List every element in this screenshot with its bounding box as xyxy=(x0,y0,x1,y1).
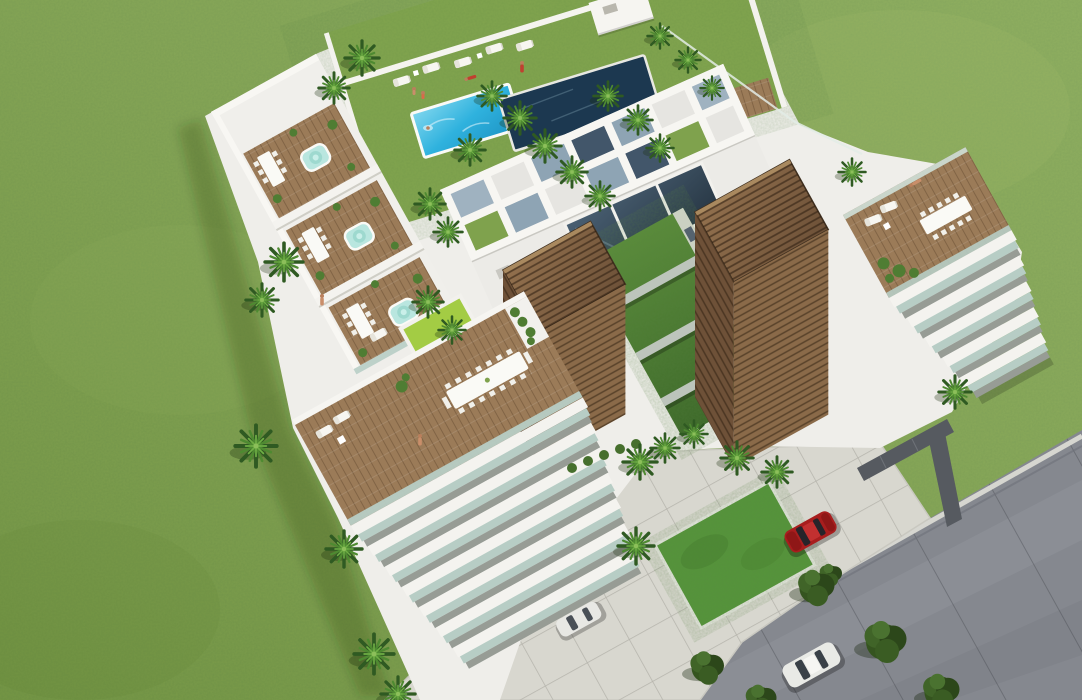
person-sitting xyxy=(412,87,416,95)
person-walking xyxy=(320,294,324,306)
person-standing xyxy=(520,61,524,73)
person-walking xyxy=(418,434,422,446)
person-sitting xyxy=(421,91,425,99)
architectural-rendering xyxy=(0,0,1082,700)
person-swimming xyxy=(423,125,433,131)
wood-tower-right xyxy=(695,160,828,467)
